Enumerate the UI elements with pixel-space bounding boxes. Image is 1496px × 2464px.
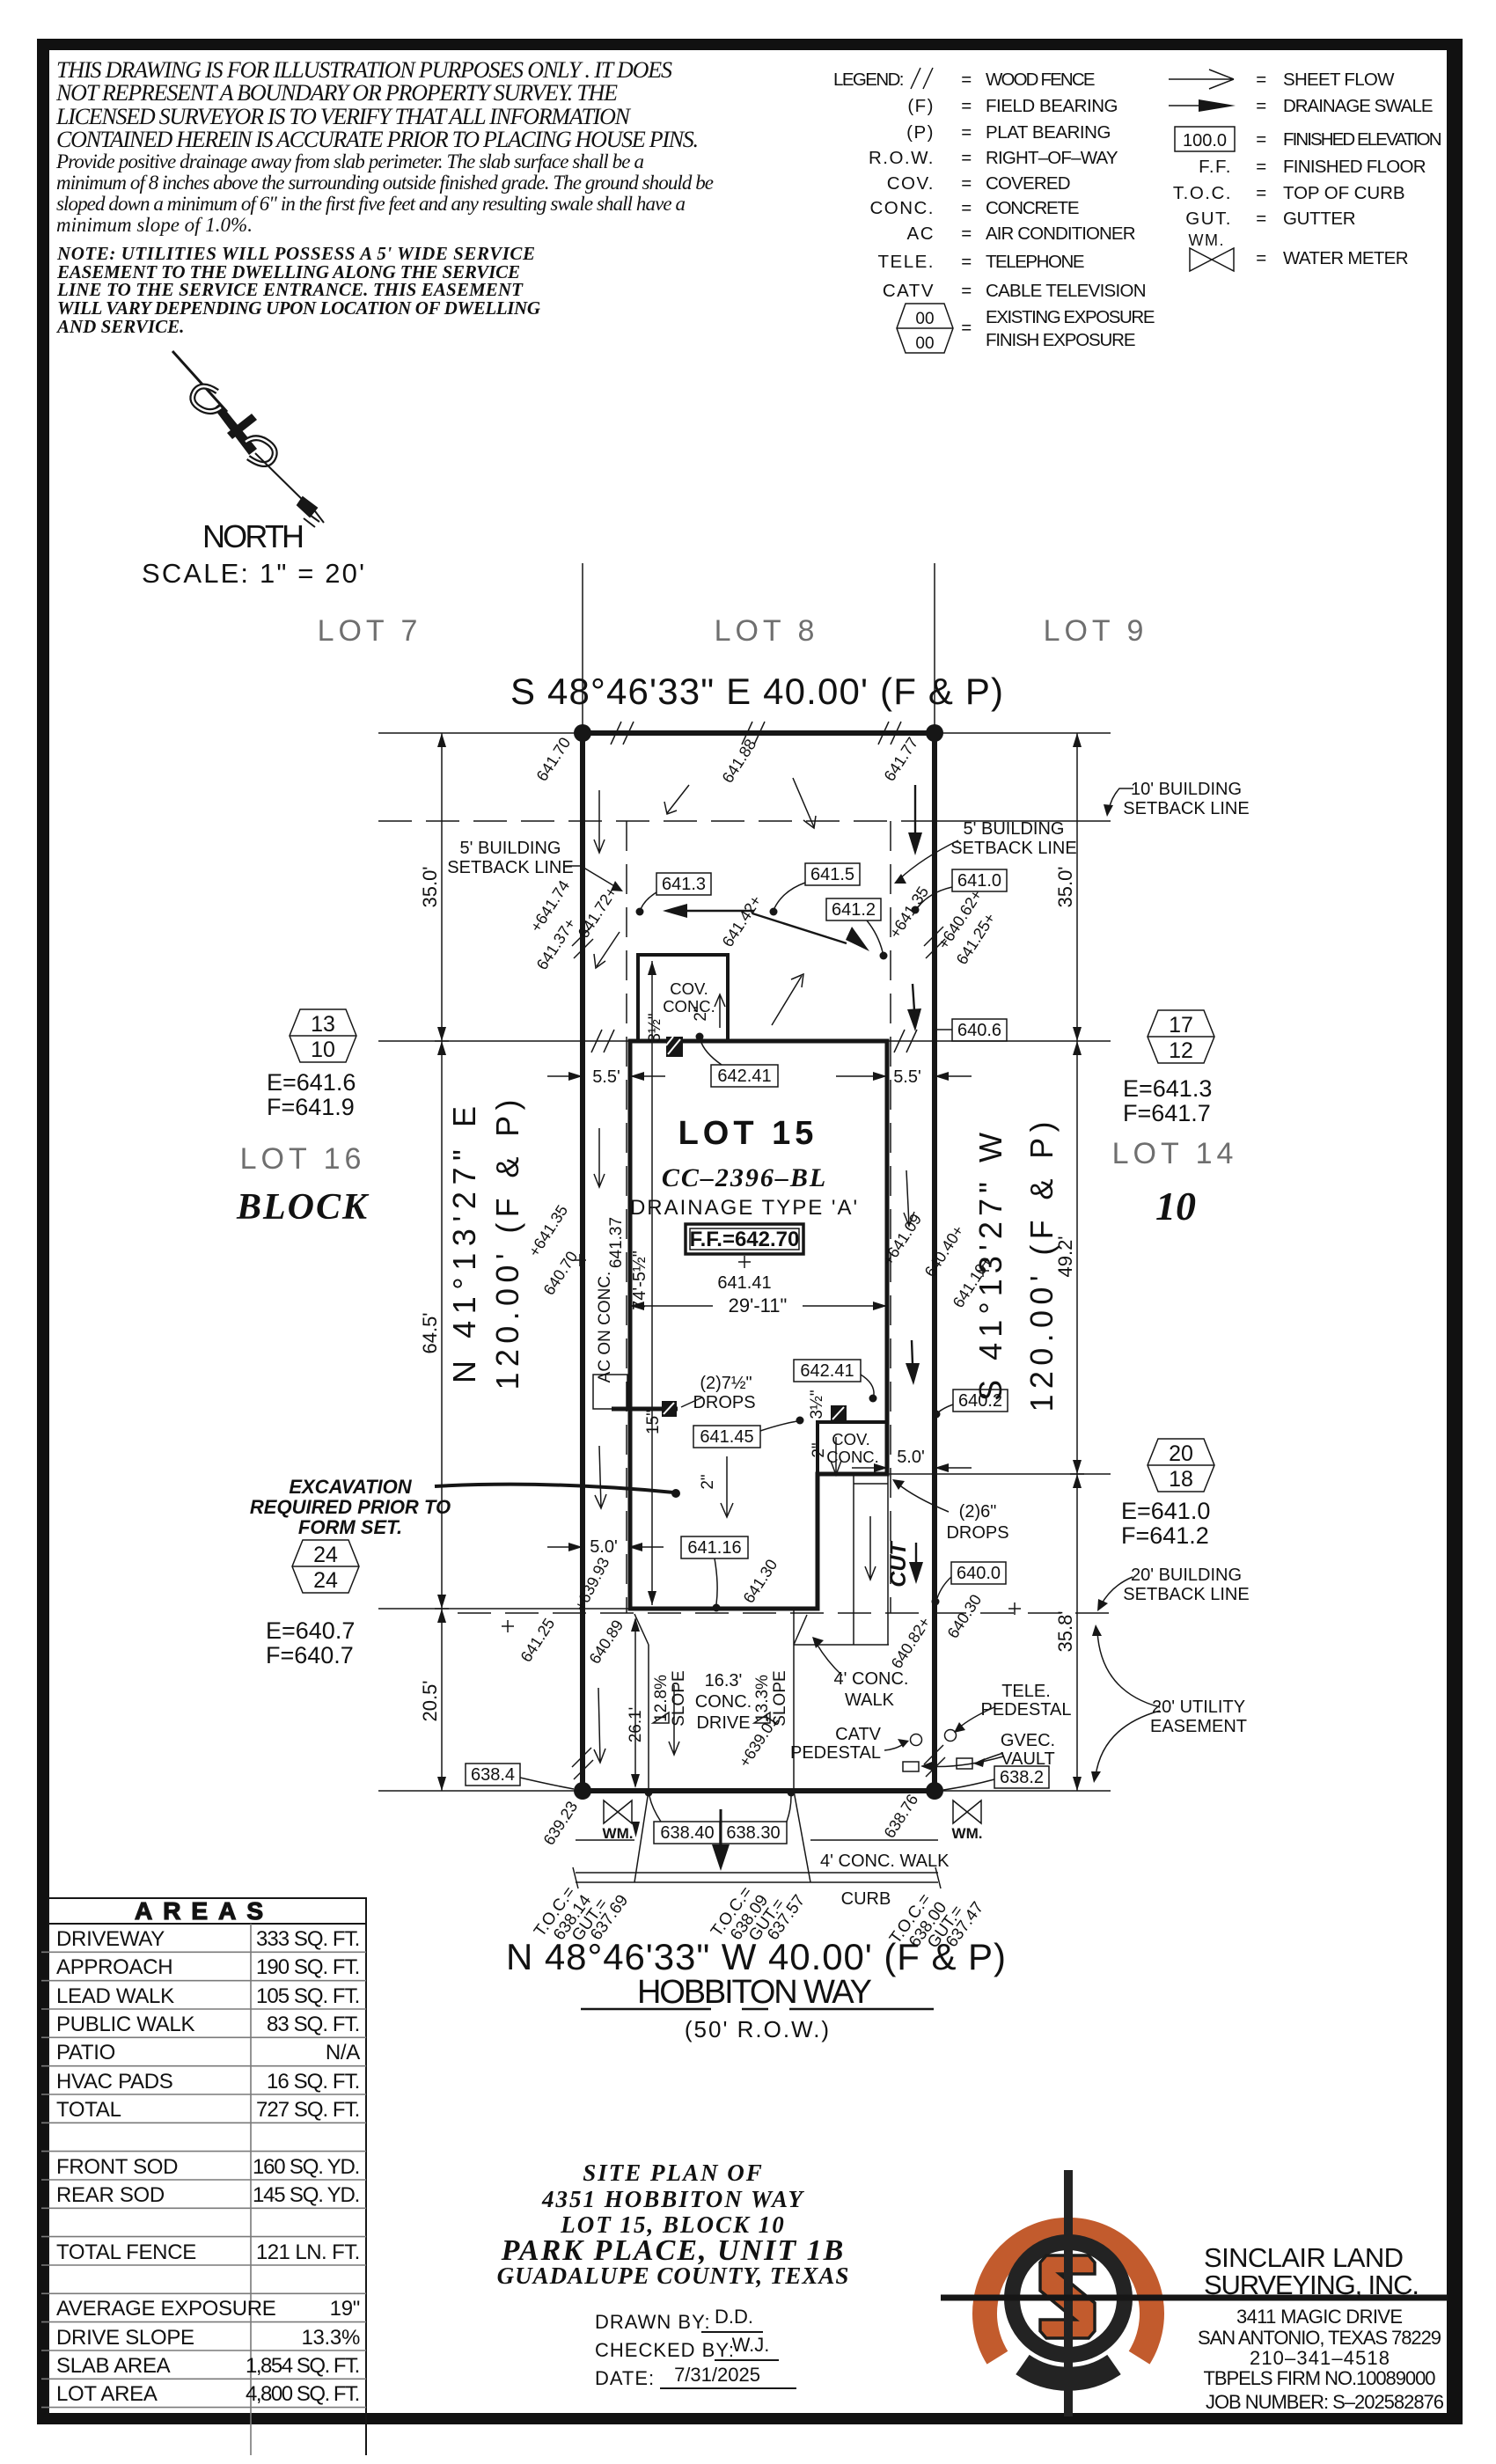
svg-text:CONC.: CONC.: [869, 198, 935, 218]
svg-text:GUTTER: GUTTER: [1283, 209, 1357, 229]
svg-text:=: =: [961, 224, 972, 244]
svg-text:641.16: 641.16: [687, 1538, 741, 1558]
svg-text:641.2: 641.2: [832, 900, 876, 920]
svg-text:12: 12: [1169, 1038, 1193, 1063]
svg-text:DROPS: DROPS: [946, 1523, 1008, 1543]
svg-text:4' CONC.: 4' CONC.: [834, 1669, 909, 1689]
svg-text:10' BUILDING: 10' BUILDING: [1131, 780, 1242, 799]
svg-text:2": 2": [692, 1006, 710, 1021]
svg-text:DRAWN BY:: DRAWN BY:: [595, 2311, 711, 2333]
svg-text:TELE.: TELE.: [878, 252, 935, 272]
svg-text:COV.: COV.: [832, 1430, 870, 1448]
svg-text:E=641.3: E=641.3: [1123, 1075, 1212, 1102]
svg-text:sloped down a minimum of 6" in: sloped down a minimum of 6" in the first…: [56, 193, 686, 215]
svg-text:24: 24: [313, 1543, 338, 1567]
svg-text:5' BUILDING: 5' BUILDING: [460, 839, 561, 858]
svg-text:4' CONC. WALK: 4' CONC. WALK: [820, 1852, 950, 1871]
svg-text:642.41: 642.41: [717, 1067, 771, 1086]
svg-text:16 SQ. FT.: 16 SQ. FT.: [267, 2070, 360, 2094]
svg-text:RIGHT–OF–WAY: RIGHT–OF–WAY: [986, 148, 1119, 168]
svg-text:641.3: 641.3: [662, 875, 706, 894]
svg-text:SCALE: 1" = 20': SCALE: 1" = 20': [142, 558, 366, 589]
svg-text:CONTAINED HEREIN IS ACCURATE P: CONTAINED HEREIN IS ACCURATE PRIOR TO PL…: [56, 127, 699, 152]
svg-text:DROPS: DROPS: [693, 1393, 755, 1412]
svg-text:R.O.W.: R.O.W.: [869, 148, 935, 168]
svg-text:FORM SET.: FORM SET.: [298, 1516, 402, 1538]
svg-text:WM.: WM.: [603, 1825, 634, 1842]
svg-text:=: =: [961, 252, 972, 272]
svg-text:AC: AC: [907, 224, 935, 244]
svg-text:641.45: 641.45: [700, 1427, 753, 1447]
svg-text:=: =: [1256, 157, 1267, 177]
svg-text:PUBLIC WALK: PUBLIC WALK: [56, 2013, 194, 2036]
svg-text:TOTAL: TOTAL: [56, 2098, 121, 2122]
svg-text:PEDESTAL: PEDESTAL: [981, 1700, 1072, 1720]
svg-text:638.30: 638.30: [726, 1823, 780, 1843]
svg-text:PATIO: PATIO: [56, 2041, 115, 2064]
svg-text:7/31/2025: 7/31/2025: [674, 2364, 760, 2386]
svg-text:SURVEYING, INC.: SURVEYING, INC.: [1204, 2270, 1419, 2300]
svg-text:74'-5½": 74'-5½": [630, 1250, 649, 1310]
svg-text:83 SQ. FT.: 83 SQ. FT.: [267, 2013, 360, 2036]
svg-text:COVERED: COVERED: [986, 173, 1072, 194]
svg-text:640.2: 640.2: [958, 1391, 1002, 1411]
svg-text:=: =: [961, 122, 972, 143]
svg-text:LOT 8: LOT 8: [715, 614, 819, 648]
svg-text:3½": 3½": [646, 1013, 664, 1042]
svg-text:18: 18: [1169, 1467, 1193, 1492]
svg-text:WATER METER: WATER METER: [1283, 248, 1410, 268]
svg-text:LOT AREA: LOT AREA: [56, 2382, 158, 2406]
svg-text:(50' R.O.W.): (50' R.O.W.): [685, 2016, 831, 2042]
svg-text:SHEET FLOW: SHEET FLOW: [1283, 70, 1396, 90]
svg-text:4351 HOBBITON WAY: 4351 HOBBITON WAY: [541, 2186, 805, 2212]
svg-text:(P): (P): [906, 122, 935, 143]
svg-text:FINISHED ELEVATION: FINISHED ELEVATION: [1283, 129, 1443, 150]
svg-text:TELEPHONE: TELEPHONE: [986, 252, 1086, 272]
svg-text:145 SQ. YD.: 145 SQ. YD.: [253, 2183, 360, 2207]
svg-text:DRIVE: DRIVE: [696, 1713, 750, 1733]
svg-text:TBPELS FIRM NO.10089000: TBPELS FIRM NO.10089000: [1204, 2367, 1437, 2389]
svg-text:638.4: 638.4: [471, 1765, 515, 1785]
svg-text:LOT 14: LOT 14: [1112, 1137, 1238, 1170]
svg-text:SINCLAIR LAND: SINCLAIR LAND: [1204, 2242, 1404, 2273]
svg-text:TOP OF CURB: TOP OF CURB: [1283, 183, 1406, 203]
svg-text:WALK: WALK: [845, 1690, 895, 1710]
svg-text:DRIVEWAY: DRIVEWAY: [56, 1927, 165, 1951]
svg-text:SITE PLAN OF: SITE PLAN OF: [583, 2160, 764, 2186]
svg-text:F.F.=642.70: F.F.=642.70: [690, 1228, 800, 1251]
svg-text:640.6: 640.6: [957, 1021, 1001, 1040]
svg-text:T.O.C.: T.O.C.: [1173, 183, 1232, 203]
svg-text:SETBACK LINE: SETBACK LINE: [950, 839, 1076, 858]
svg-text:49.2': 49.2': [1054, 1236, 1076, 1277]
svg-text:120.00' (F & P): 120.00' (F & P): [489, 1096, 525, 1390]
svg-text:5.5': 5.5': [893, 1067, 921, 1087]
svg-text:S 48°46'33" E 40.00' (F & P): S 48°46'33" E 40.00' (F & P): [510, 671, 1008, 712]
svg-text:10: 10: [311, 1038, 335, 1062]
svg-text:F=641.7: F=641.7: [1123, 1100, 1211, 1126]
svg-text:121 LN. FT.: 121 LN. FT.: [256, 2240, 360, 2264]
svg-text:19": 19": [330, 2297, 360, 2321]
svg-text:F=640.7: F=640.7: [266, 1642, 354, 1668]
svg-text:APPROACH: APPROACH: [56, 1955, 172, 1979]
svg-text:DRAINAGE TYPE 'A': DRAINAGE TYPE 'A': [630, 1196, 859, 1220]
svg-text:E=641.0: E=641.0: [1121, 1498, 1210, 1524]
svg-text:641.5: 641.5: [810, 865, 854, 884]
svg-text:35.0': 35.0': [419, 866, 441, 907]
svg-text:641.37: 641.37: [607, 1217, 626, 1268]
svg-text:GVEC.: GVEC.: [1001, 1731, 1055, 1750]
svg-text:CABLE TELEVISION: CABLE TELEVISION: [986, 281, 1148, 301]
svg-text:12.8%: 12.8%: [652, 1675, 671, 1722]
svg-text:105 SQ. FT.: 105 SQ. FT.: [256, 1984, 360, 2008]
svg-text:20' BUILDING: 20' BUILDING: [1131, 1566, 1242, 1585]
svg-text:(2)6": (2)6": [959, 1502, 997, 1522]
svg-text:SETBACK LINE: SETBACK LINE: [447, 858, 573, 877]
svg-text:190 SQ. FT.: 190 SQ. FT.: [256, 1955, 360, 1979]
svg-text:GUT.: GUT.: [1185, 209, 1232, 229]
svg-text:EXCAVATION: EXCAVATION: [289, 1476, 412, 1498]
svg-text:AND SERVICE.: AND SERVICE.: [55, 316, 184, 337]
svg-text:35.8': 35.8': [1054, 1610, 1076, 1652]
svg-text:FIELD BEARING: FIELD BEARING: [986, 96, 1119, 116]
svg-text:REAR SOD: REAR SOD: [56, 2183, 165, 2207]
svg-text:20' UTILITY: 20' UTILITY: [1152, 1698, 1245, 1717]
svg-text:CHECKED BY:: CHECKED BY:: [595, 2339, 735, 2361]
svg-text:SAN ANTONIO, TEXAS 78229: SAN ANTONIO, TEXAS 78229: [1198, 2327, 1442, 2349]
svg-text:640.0: 640.0: [957, 1564, 1001, 1583]
svg-text:29'-11": 29'-11": [729, 1294, 788, 1316]
svg-text:FINISH EXPOSURE: FINISH EXPOSURE: [986, 330, 1137, 350]
svg-text:=: =: [961, 70, 972, 90]
svg-text:SETBACK LINE: SETBACK LINE: [1123, 1585, 1249, 1604]
svg-text:=: =: [961, 173, 972, 194]
svg-text:NOT REPRESENT A BOUNDARY OR PR: NOT REPRESENT A BOUNDARY OR PROPERTY SUR…: [55, 80, 618, 106]
svg-text:=: =: [961, 281, 972, 301]
svg-text:15": 15": [644, 1410, 663, 1434]
svg-text:5.0': 5.0': [897, 1448, 925, 1467]
svg-text:PLAT BEARING: PLAT BEARING: [986, 122, 1112, 143]
svg-text:GUADALUPE COUNTY, TEXAS: GUADALUPE COUNTY, TEXAS: [497, 2262, 850, 2289]
svg-text:=: =: [961, 96, 972, 116]
svg-text:26.1': 26.1': [627, 1707, 645, 1743]
svg-text:FRONT SOD: FRONT SOD: [56, 2155, 178, 2179]
svg-text:4,800 SQ. FT.: 4,800 SQ. FT.: [246, 2382, 360, 2406]
svg-text:5.5': 5.5': [592, 1067, 620, 1087]
svg-text:=: =: [1256, 129, 1267, 150]
svg-text:W.J.: W.J.: [732, 2334, 770, 2356]
svg-text:N/A: N/A: [326, 2041, 360, 2064]
svg-text:LOT 16: LOT 16: [240, 1142, 366, 1176]
svg-text:20: 20: [1169, 1441, 1193, 1466]
svg-text:HOBBITON WAY: HOBBITON WAY: [637, 1974, 877, 2011]
svg-text:641.0: 641.0: [957, 871, 1001, 891]
svg-text:CONC.: CONC.: [695, 1692, 752, 1712]
svg-text:=: =: [961, 198, 972, 218]
svg-text:00: 00: [915, 334, 934, 353]
svg-text:AC ON CONC.: AC ON CONC.: [596, 1272, 614, 1383]
svg-text:PEDESTAL: PEDESTAL: [790, 1743, 881, 1763]
svg-text:=: =: [1256, 96, 1267, 116]
svg-text:5.0': 5.0': [590, 1537, 618, 1557]
svg-text:F.F.: F.F.: [1199, 157, 1232, 177]
svg-text:CURB: CURB: [841, 1889, 891, 1909]
svg-text:13.3%: 13.3%: [301, 2326, 360, 2350]
svg-text:5' BUILDING: 5' BUILDING: [964, 819, 1065, 839]
svg-text:1,854 SQ. FT.: 1,854 SQ. FT.: [246, 2354, 360, 2378]
svg-text:THIS DRAWING IS FOR ILLUSTRATI: THIS DRAWING IS FOR ILLUSTRATION PURPOSE…: [56, 57, 672, 83]
svg-text:64.5': 64.5': [419, 1312, 441, 1353]
svg-text:AVERAGE EXPOSURE: AVERAGE EXPOSURE: [56, 2297, 276, 2321]
svg-text:LEGEND:: LEGEND:: [833, 70, 906, 90]
svg-text:REQUIRED PRIOR TO: REQUIRED PRIOR TO: [250, 1496, 451, 1518]
svg-text:CUT: CUT: [886, 1540, 911, 1588]
svg-text:HVAC PADS: HVAC PADS: [56, 2070, 172, 2094]
svg-text:LICENSED SURVEYOR IS TO VERIFY: LICENSED SURVEYOR IS TO VERIFY THAT ALL …: [55, 104, 632, 129]
svg-text:2": 2": [699, 1474, 717, 1489]
svg-text:00: 00: [915, 310, 934, 328]
svg-text:35.0': 35.0': [1054, 866, 1076, 907]
svg-text:EXISTING EXPOSURE: EXISTING EXPOSURE: [986, 307, 1156, 327]
svg-text:BLOCK: BLOCK: [236, 1187, 370, 1228]
svg-text:=: =: [961, 148, 972, 168]
svg-text:D.D.: D.D.: [715, 2306, 753, 2328]
svg-text:minimum of 8 inches above the: minimum of 8 inches above the surroundin…: [56, 172, 714, 194]
svg-text:LEAD WALK: LEAD WALK: [56, 1984, 174, 2008]
svg-text:638.2: 638.2: [1000, 1768, 1044, 1787]
svg-text:TELE.: TELE.: [1001, 1682, 1051, 1701]
svg-text:(2)7½": (2)7½": [700, 1374, 752, 1393]
svg-text:COV.: COV.: [670, 979, 708, 998]
svg-text:CATV: CATV: [883, 281, 935, 301]
svg-text:SETBACK LINE: SETBACK LINE: [1123, 799, 1249, 818]
svg-text:CC–2396–BL: CC–2396–BL: [662, 1163, 827, 1192]
svg-text:TOTAL FENCE: TOTAL FENCE: [56, 2240, 196, 2264]
svg-text:DRIVE SLOPE: DRIVE SLOPE: [56, 2326, 194, 2350]
svg-text:16.3': 16.3': [705, 1671, 743, 1690]
svg-text:638.40: 638.40: [660, 1823, 714, 1843]
svg-text:WM.: WM.: [1189, 231, 1225, 249]
svg-text:=: =: [1256, 248, 1267, 268]
svg-text:CATV: CATV: [835, 1725, 882, 1744]
svg-text:LOT 9: LOT 9: [1044, 614, 1148, 648]
svg-text:13: 13: [311, 1012, 335, 1037]
svg-text:WOOD FENCE: WOOD FENCE: [986, 70, 1096, 90]
svg-text:641.41: 641.41: [717, 1273, 771, 1293]
svg-text:EASEMENT: EASEMENT: [1150, 1717, 1247, 1736]
svg-text:DRAINAGE SWALE: DRAINAGE SWALE: [1283, 96, 1434, 116]
svg-text:F=641.2: F=641.2: [1121, 1522, 1209, 1549]
svg-text:=: =: [1256, 183, 1267, 203]
svg-text:COV.: COV.: [887, 173, 935, 194]
svg-text:CONCRETE: CONCRETE: [986, 198, 1081, 218]
svg-text:minimum slope of 1.0%.: minimum slope of 1.0%.: [56, 214, 253, 236]
svg-text:E=640.7: E=640.7: [266, 1617, 355, 1644]
svg-text:24: 24: [313, 1568, 338, 1593]
svg-text:=: =: [1256, 209, 1267, 229]
svg-text:F=641.9: F=641.9: [267, 1094, 355, 1120]
svg-text:642.41: 642.41: [800, 1361, 854, 1381]
svg-text:NORTH: NORTH: [202, 518, 306, 554]
svg-text:3½": 3½": [808, 1390, 826, 1419]
svg-text:DATE:: DATE:: [595, 2367, 655, 2389]
svg-text:160 SQ. YD.: 160 SQ. YD.: [253, 2155, 360, 2179]
svg-text:LOT 7: LOT 7: [318, 614, 422, 648]
svg-text:FINISHED FLOOR: FINISHED FLOOR: [1283, 157, 1427, 177]
svg-text:10: 10: [1155, 1184, 1196, 1228]
svg-text:Provide positive drainage away: Provide positive drainage away from slab…: [55, 150, 644, 172]
svg-text:SLOPE: SLOPE: [670, 1670, 688, 1726]
svg-text:17: 17: [1169, 1013, 1193, 1038]
svg-text:CONC.: CONC.: [826, 1448, 879, 1466]
svg-text:20.5': 20.5': [419, 1680, 441, 1721]
svg-text:=: =: [1256, 70, 1267, 90]
svg-text:3411 MAGIC DRIVE: 3411 MAGIC DRIVE: [1236, 2306, 1404, 2328]
svg-text:AIR CONDITIONER: AIR CONDITIONER: [986, 224, 1137, 244]
svg-text:727 SQ. FT.: 727 SQ. FT.: [256, 2098, 360, 2122]
svg-text:(F): (F): [907, 96, 935, 116]
svg-text:2": 2": [810, 1442, 828, 1457]
svg-text:SLAB AREA: SLAB AREA: [56, 2354, 171, 2378]
svg-text:E=641.6: E=641.6: [267, 1069, 356, 1096]
svg-text:100.0: 100.0: [1183, 131, 1227, 150]
svg-text:LOT 15: LOT 15: [678, 1115, 818, 1152]
svg-text:333 SQ. FT.: 333 SQ. FT.: [256, 1927, 360, 1951]
svg-text:JOB NUMBER: S–202582876: JOB NUMBER: S–202582876: [1206, 2391, 1445, 2413]
svg-text:=: =: [961, 318, 972, 338]
svg-text:AREAS: AREAS: [135, 1897, 274, 1925]
svg-text:WM.: WM.: [952, 1825, 983, 1842]
svg-text:210–341–4518: 210–341–4518: [1250, 2347, 1390, 2369]
